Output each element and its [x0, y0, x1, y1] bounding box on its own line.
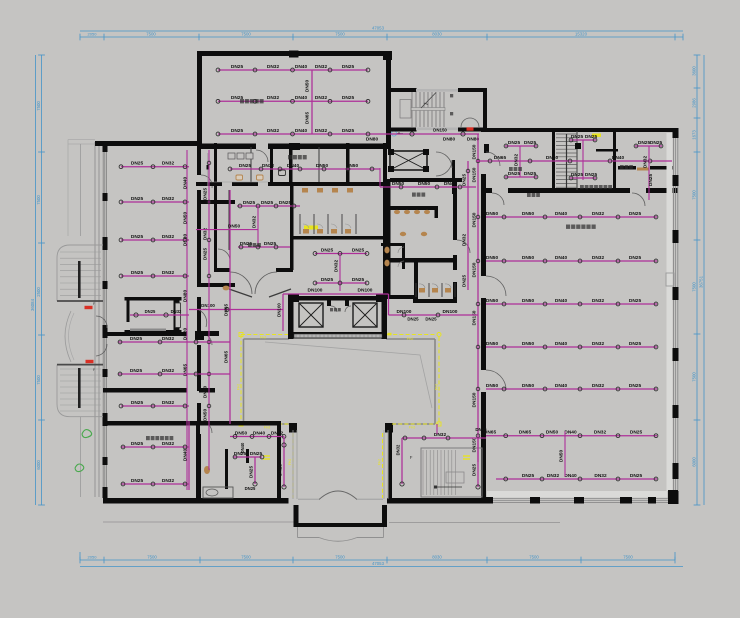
svg-text:DN150: DN150 [472, 262, 478, 277]
svg-text:DN32: DN32 [462, 234, 468, 247]
svg-text:DN100: DN100 [201, 303, 215, 308]
svg-text:DN32: DN32 [162, 270, 175, 276]
svg-text:7500: 7500 [36, 101, 41, 111]
svg-text:DN100: DN100 [308, 288, 323, 294]
svg-text:DN150: DN150 [472, 167, 478, 182]
svg-text:DN25: DN25 [342, 128, 355, 134]
svg-text:DN32: DN32 [162, 478, 175, 484]
svg-text:DN40: DN40 [253, 430, 266, 436]
svg-text:DN25: DN25 [131, 196, 144, 202]
svg-text:DN32: DN32 [594, 473, 607, 479]
svg-text:DN25: DN25 [508, 171, 521, 177]
svg-text:DN100: DN100 [358, 288, 373, 294]
svg-text:7500: 7500 [146, 31, 156, 36]
svg-text:DN50: DN50 [235, 430, 248, 436]
svg-text:DN32: DN32 [592, 255, 605, 261]
svg-text:DN25: DN25 [585, 134, 598, 140]
svg-text:DN65: DN65 [224, 351, 230, 364]
svg-text:DN32: DN32 [643, 156, 649, 169]
svg-text:DN25: DN25 [630, 473, 643, 479]
svg-text:FHJ: FHJ [407, 337, 414, 341]
svg-text:DN25: DN25 [630, 430, 643, 436]
svg-text:DN40: DN40 [183, 177, 189, 190]
svg-text:FHJ: FHJ [260, 336, 267, 340]
svg-text:DN25: DN25 [243, 200, 256, 206]
svg-text:DN25: DN25 [629, 341, 642, 347]
svg-text:DN100: DN100 [397, 309, 412, 315]
svg-text:DN150: DN150 [472, 437, 478, 452]
svg-text:DN25: DN25 [250, 451, 263, 457]
svg-text:DN50: DN50 [486, 211, 499, 217]
svg-text:DN25: DN25 [342, 95, 355, 101]
svg-text:DN25: DN25 [203, 248, 209, 261]
svg-text:F: F [410, 455, 413, 460]
svg-text:DN25: DN25 [131, 400, 144, 406]
svg-text:DN65: DN65 [224, 304, 230, 317]
svg-text:2500: 2500 [36, 287, 41, 297]
svg-text:DN32: DN32 [514, 154, 520, 167]
svg-text:DN150: DN150 [472, 144, 478, 159]
svg-text:DN40: DN40 [555, 298, 568, 304]
svg-text:DN50: DN50 [522, 211, 535, 217]
svg-text:7500: 7500 [623, 554, 633, 559]
svg-text:DN32: DN32 [396, 444, 401, 455]
svg-text:DN25: DN25 [342, 64, 355, 70]
svg-text:DN100: DN100 [277, 303, 282, 317]
svg-text:DN25: DN25 [650, 140, 663, 146]
svg-text:DN25: DN25 [638, 140, 651, 146]
svg-text:DN25: DN25 [264, 241, 277, 247]
svg-text:7500: 7500 [335, 554, 345, 559]
svg-text:DN40: DN40 [555, 211, 568, 217]
svg-text:DN25: DN25 [145, 309, 156, 314]
svg-text:DN25: DN25 [249, 466, 255, 479]
svg-text:DN150: DN150 [472, 310, 478, 325]
svg-text:DN25: DN25 [231, 64, 244, 70]
svg-text:7500: 7500 [241, 554, 251, 559]
svg-text:DN32: DN32 [271, 430, 284, 436]
svg-text:8030: 8030 [432, 31, 442, 36]
svg-text:DN50: DN50 [486, 298, 499, 304]
svg-text:DN25: DN25 [585, 172, 598, 178]
svg-text:DN25: DN25 [234, 451, 247, 457]
svg-text:6000: 6000 [691, 457, 696, 467]
svg-text:7500: 7500 [36, 375, 41, 385]
svg-text:DN50: DN50 [346, 163, 359, 169]
svg-text:DN25: DN25 [131, 270, 144, 276]
svg-text:DN40: DN40 [295, 95, 308, 101]
svg-text:DN25: DN25 [352, 277, 365, 283]
svg-text:DN80: DN80 [183, 328, 189, 341]
svg-text:47053: 47053 [372, 561, 385, 566]
svg-text:DN50: DN50 [228, 224, 241, 230]
svg-text:DN40: DN40 [287, 163, 300, 169]
svg-text:DN32: DN32 [315, 64, 328, 70]
svg-text:DN32: DN32 [162, 336, 175, 342]
svg-text:8030: 8030 [432, 554, 442, 559]
svg-text:DN25: DN25 [321, 277, 334, 283]
svg-text:15320: 15320 [575, 31, 588, 36]
svg-text:DN50: DN50 [546, 430, 559, 436]
svg-text:DN50: DN50 [316, 163, 329, 169]
svg-text:DN50: DN50 [522, 383, 535, 389]
svg-text:DN32: DN32 [162, 234, 175, 240]
svg-text:DN25: DN25 [203, 188, 209, 201]
svg-text:DN50: DN50 [522, 298, 535, 304]
svg-text:FHJ: FHJ [237, 384, 241, 391]
svg-text:DN25: DN25 [239, 163, 252, 169]
svg-text:DN32: DN32 [315, 128, 328, 134]
svg-text:DN32: DN32 [315, 95, 328, 101]
svg-text:7500: 7500 [147, 554, 157, 559]
svg-text:7500: 7500 [529, 554, 539, 559]
svg-text:DN25: DN25 [279, 200, 292, 206]
svg-text:3600: 3600 [691, 66, 696, 76]
svg-text:DN50: DN50 [418, 181, 431, 187]
svg-text:DN32: DN32 [592, 383, 605, 389]
svg-text:DN40: DN40 [555, 255, 568, 261]
svg-text:DN150: DN150 [433, 128, 447, 133]
svg-text:DN32: DN32 [171, 309, 182, 314]
svg-text:DN150: DN150 [472, 392, 478, 407]
svg-text:DN25: DN25 [629, 383, 642, 389]
svg-text:DN32: DN32 [592, 211, 605, 217]
svg-text:DN65: DN65 [519, 430, 532, 436]
svg-text:DN150: DN150 [472, 212, 478, 227]
svg-text:FHJ: FHJ [264, 426, 271, 430]
svg-text:DN25: DN25 [629, 255, 642, 261]
svg-text:DN50: DN50 [203, 409, 209, 422]
svg-text:DN50: DN50 [305, 80, 311, 93]
svg-text:DN100: DN100 [443, 309, 458, 315]
svg-text:DN25: DN25 [130, 368, 143, 374]
svg-text:7500: 7500 [691, 190, 696, 200]
svg-text:DN40: DN40 [444, 181, 457, 187]
svg-text:DN80: DN80 [366, 137, 379, 143]
svg-text:FHJ: FHJ [378, 459, 382, 466]
svg-text:DN25: DN25 [131, 441, 144, 447]
svg-text:DN32: DN32 [592, 341, 605, 347]
svg-text:DN50: DN50 [486, 383, 499, 389]
svg-text:DN25: DN25 [524, 171, 537, 177]
svg-text:DN65: DN65 [305, 112, 311, 125]
svg-text:FHJ: FHJ [435, 384, 439, 391]
svg-text:2986: 2986 [691, 98, 696, 108]
svg-text:DN32: DN32 [267, 64, 280, 70]
svg-text:DN40: DN40 [564, 430, 577, 436]
svg-text:DN32: DN32 [434, 432, 447, 438]
svg-text:DN25: DN25 [352, 247, 365, 253]
svg-text:DN25: DN25 [407, 317, 419, 322]
svg-text:7500: 7500 [691, 282, 696, 292]
svg-text:DN80: DN80 [443, 137, 456, 143]
svg-text:DN32: DN32 [547, 473, 560, 479]
svg-text:DN25: DN25 [508, 140, 521, 146]
svg-text:DN25: DN25 [131, 161, 144, 167]
svg-text:DN25: DN25 [648, 174, 654, 187]
svg-text:DN25: DN25 [462, 174, 468, 187]
svg-text:DN25: DN25 [278, 464, 284, 477]
svg-text:DN25: DN25 [130, 336, 143, 342]
svg-text:DN40: DN40 [564, 473, 577, 479]
svg-text:7500: 7500 [335, 31, 345, 36]
svg-text:DN32: DN32 [594, 430, 607, 436]
svg-text:DN32: DN32 [162, 400, 175, 406]
svg-text:DN50: DN50 [486, 255, 499, 261]
svg-text:DN25: DN25 [629, 211, 642, 217]
svg-text:DN50: DN50 [559, 450, 565, 463]
svg-text:7500: 7500 [36, 195, 41, 205]
svg-text:DN32: DN32 [262, 163, 275, 169]
svg-text:DN40: DN40 [555, 383, 568, 389]
svg-text:FHJ: FHJ [288, 459, 292, 466]
svg-text:DN32: DN32 [252, 216, 258, 229]
svg-text:47053: 47053 [372, 26, 385, 31]
svg-text:DN32: DN32 [592, 298, 605, 304]
svg-text:36084: 36084 [30, 298, 35, 311]
svg-text:DN40: DN40 [295, 128, 308, 134]
svg-text:7500: 7500 [241, 31, 251, 36]
svg-text:DN50: DN50 [522, 255, 535, 261]
svg-text:DN25: DN25 [462, 275, 468, 288]
svg-text:DN40: DN40 [612, 155, 625, 161]
svg-text:2050: 2050 [88, 31, 98, 36]
svg-text:DN32: DN32 [162, 368, 175, 374]
svg-text:DN50: DN50 [546, 155, 559, 161]
svg-text:DN100: DN100 [382, 299, 387, 313]
svg-text:DN25: DN25 [629, 298, 642, 304]
svg-text:DN32: DN32 [162, 196, 175, 202]
svg-text:7500: 7500 [691, 372, 696, 382]
svg-text:DN25: DN25 [472, 464, 478, 477]
svg-text:DN32: DN32 [162, 161, 175, 167]
svg-text:DN32: DN32 [162, 441, 175, 447]
svg-text:DN50: DN50 [486, 341, 499, 347]
svg-text:FHJ: FHJ [409, 426, 416, 430]
svg-text:DN25: DN25 [245, 486, 256, 491]
svg-text:DN40: DN40 [555, 341, 568, 347]
svg-text:DN50: DN50 [522, 341, 535, 347]
svg-text:DN32: DN32 [267, 95, 280, 101]
svg-text:DN50: DN50 [392, 181, 405, 187]
svg-text:DN25: DN25 [131, 234, 144, 240]
svg-text:DN40: DN40 [183, 449, 189, 462]
svg-text:DN25: DN25 [524, 140, 537, 146]
svg-text:DN80: DN80 [183, 290, 189, 303]
svg-text:DN25: DN25 [571, 172, 584, 178]
svg-text:DN50: DN50 [183, 212, 189, 225]
svg-text:DN32: DN32 [267, 128, 280, 134]
svg-text:DN25: DN25 [321, 247, 334, 253]
svg-text:DN50: DN50 [203, 386, 209, 399]
svg-text:36751: 36751 [699, 275, 704, 288]
svg-text:DN25: DN25 [131, 478, 144, 484]
svg-text:DN40: DN40 [295, 64, 308, 70]
svg-text:DN25: DN25 [425, 317, 437, 322]
svg-text:DN25: DN25 [231, 128, 244, 134]
svg-text:DN25: DN25 [522, 473, 535, 479]
svg-text:6000: 6000 [36, 460, 41, 470]
svg-text:2050: 2050 [88, 554, 98, 559]
svg-text:DN25: DN25 [571, 134, 584, 140]
svg-text:1673: 1673 [691, 130, 696, 140]
svg-text:DN65: DN65 [494, 155, 507, 161]
svg-text:DN32: DN32 [334, 260, 340, 273]
svg-text:DN65: DN65 [475, 427, 487, 432]
svg-text:DN25: DN25 [261, 200, 274, 206]
